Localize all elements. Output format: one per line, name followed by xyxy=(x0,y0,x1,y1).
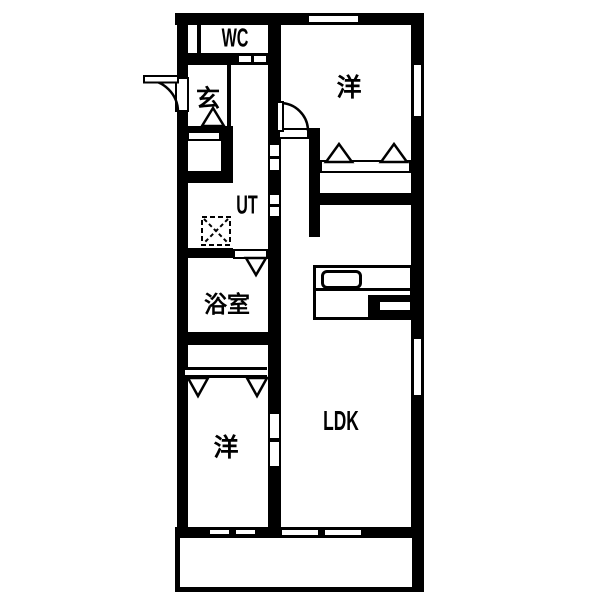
wall-closet-top-bottom xyxy=(315,193,424,205)
hallway-ldk-door-panel-2 xyxy=(268,157,281,172)
wc-door-panel-1 xyxy=(237,54,253,64)
symbols-layer xyxy=(0,0,600,600)
window-bottom-bedroom-2 xyxy=(234,528,257,536)
room-label-bathroom: 浴室 xyxy=(204,285,250,319)
entrance-door-swing-icon xyxy=(144,76,178,112)
closet-bottom-triangle-icon-2 xyxy=(247,378,267,396)
hallway-ldk-door-panel-1 xyxy=(268,143,281,158)
closet-bottom-triangle-icon-1 xyxy=(188,378,208,396)
floorplan: WC 玄 洋 UT 浴室 洋 LDK xyxy=(0,0,600,600)
room-label-bedroom-top: 洋 xyxy=(336,68,361,104)
room-label-wc: WC xyxy=(222,23,249,54)
room-label-genkan: 玄 xyxy=(196,79,220,114)
bathroom-door xyxy=(233,249,268,259)
room-label-ldk: LDK xyxy=(323,405,359,437)
washing-machine-pan-icon xyxy=(202,217,230,245)
window-bottom-bedroom-1 xyxy=(208,528,231,536)
storage-door xyxy=(187,131,221,141)
wall-closet-top-left xyxy=(309,128,320,237)
wc-partition-line xyxy=(197,25,201,53)
wall-storage-bottom xyxy=(177,171,233,183)
room-label-ut: UT xyxy=(236,190,257,221)
closet-bottom-door xyxy=(185,367,267,378)
bedroom-bottom-door-panel-2 xyxy=(268,440,281,468)
bedroom-top-door-opening xyxy=(278,128,309,139)
window-top xyxy=(307,14,360,24)
room-label-bedroom-bottom: 洋 xyxy=(213,428,238,464)
bathroom-door-triangle-icon xyxy=(246,258,266,275)
ut-door-panel-2 xyxy=(268,205,281,218)
closet-top-door xyxy=(320,160,411,173)
window-bottom-ldk-2 xyxy=(323,528,363,537)
wall-ut-bottom xyxy=(177,248,233,258)
window-bottom-ldk-1 xyxy=(280,528,320,537)
bedroom-top-door-swing-icon xyxy=(277,102,308,131)
entrance-door-opening xyxy=(175,77,189,112)
wc-door-panel-2 xyxy=(252,54,268,64)
balcony xyxy=(175,538,424,592)
window-right-lower xyxy=(412,337,423,397)
kitchen-sink xyxy=(321,270,362,289)
window-right-upper xyxy=(412,63,423,118)
genkan-step-line xyxy=(227,65,231,126)
wall-top xyxy=(175,13,424,25)
bedroom-bottom-door-panel-1 xyxy=(268,412,281,440)
wall-bath-bottom xyxy=(177,332,270,345)
kitchen-stub-slot xyxy=(380,302,410,310)
